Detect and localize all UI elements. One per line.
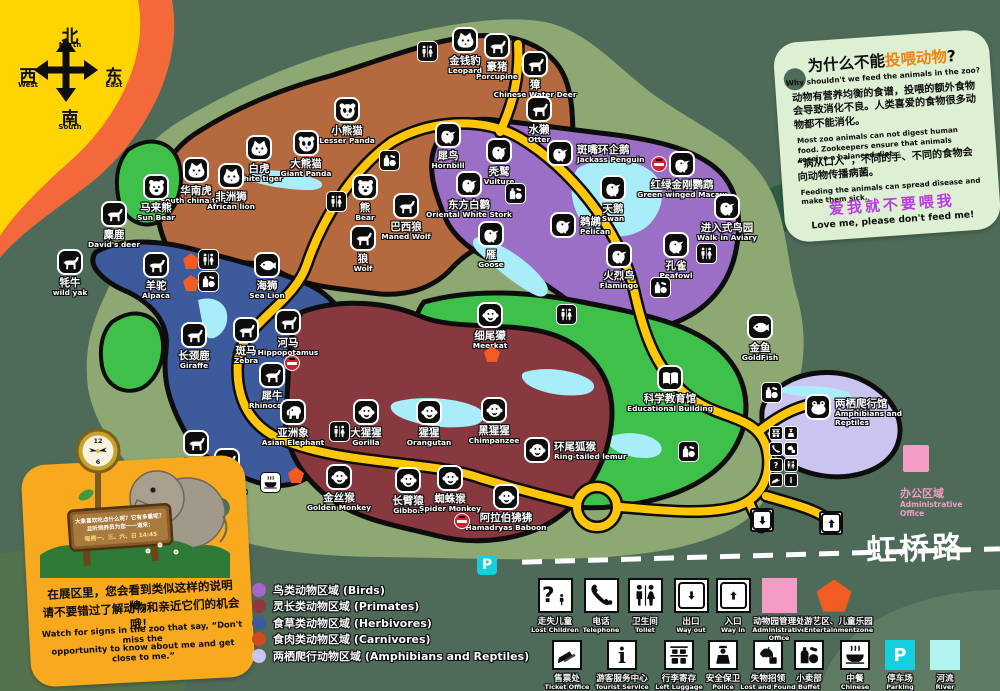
legend-river: 河流River [915,640,975,691]
mini-luggage-icon [769,426,783,440]
zone-legend-label: 食肉类动物区域 (Carnivores) [273,631,431,647]
parking-icon: P [477,555,497,575]
mini-lostchild-icon: ? [769,458,783,472]
zone-legend-item-3: 食肉类动物区域 (Carnivores) [252,631,431,647]
legend-label-en: Ticket Office [537,684,597,691]
legend-entertainmentzone-icon [817,578,852,613]
mini-police-icon [784,426,798,440]
legend-toilet-icon [628,578,663,613]
info-card: 为什么不能投喂动物? Why shouldn't we feed the ani… [772,29,1000,244]
legend-river-icon [930,640,960,670]
zone-color-dot [252,599,266,613]
no-entry-icon [454,513,470,529]
entertainment-pentagon-icon [484,346,500,362]
entertainment-pentagon-icon [183,253,199,269]
admin-area-chip [903,445,929,472]
kiosk-icon [678,441,699,462]
zone-legend-item-0: 鸟类动物区域 (Birds) [252,582,385,598]
legend-tourist-service-centre-icon: i [607,640,637,670]
toilet-icon [556,304,577,325]
wayin-icon [819,511,843,535]
legend-buffet-icon [794,640,824,670]
toilet-icon [696,243,717,264]
legend-label-en: River [915,684,975,691]
info-card-para1-zh: 动物有营养均衡的食谱，投喂的额外食物会导致消化不良。人类喜爱的食物很多动物都不能… [792,80,980,133]
mini-lostfound-icon [784,442,798,456]
legend-lost-children-icon: ? [538,578,573,613]
kiosk-icon [650,277,671,298]
kiosk-icon [379,150,400,171]
chinese-restaurant-icon [260,472,281,493]
clock-6: 6 [96,458,101,466]
legend-police-icon [708,640,738,670]
wayout-icon [750,508,774,532]
mini-toilet-icon [784,458,798,472]
legend-ticket-office: 售票处Ticket Office [537,640,597,691]
legend-label-en: Entertainmentzone [804,627,864,635]
zone-legend-label: 两栖爬行动物区域 (Amphibians and Reptiles) [273,648,529,664]
zoo-map: 北 North 西 West 东 East 南 South 金钱豹Leopard… [0,0,1000,691]
kiosk-icon [505,183,526,204]
zone-legend-item-4: 两栖爬行动物区域 (Amphibians and Reptiles) [252,648,529,664]
clock-12: 12 [93,437,102,445]
admin-area-zh: 办公区域 [900,487,962,500]
legend-administrative-office: 动物园管理处Administrative Office [749,578,809,642]
zone-legend-label: 食草类动物区域 (Herbivores) [273,615,432,631]
mini-ticket-icon [769,473,783,487]
legend-entertainmentzone: 游艺区、儿童乐园Entertainmentzone [804,578,864,635]
legend-ticket-office-icon [552,640,582,670]
mini-phone-icon [769,442,783,456]
entertainment-pentagon-icon [288,467,304,483]
legend-chinese-restaurant-icon [840,640,870,670]
zone-legend-item-1: 灵长类动物区域 (Primates) [252,598,419,614]
kiosk-icon [198,271,219,292]
legend-label-en: Tourist Service Centre [592,684,652,691]
no-entry-icon [284,355,300,371]
legend-left-luggage-icon [664,640,694,670]
road-name: 虹桥路 [865,522,965,569]
entertainment-pentagon-icon [183,275,199,291]
zone-color-dot [252,616,266,630]
toilet-icon [326,191,347,212]
admin-area-en: Administrative Office [900,500,962,518]
elephant-illustration: 12 6 大象喜欢吃点什么呢？它有多重呢？ 且听饲养员为您一一道来： 每周一、三… [40,423,230,578]
mini-info-icon: i [784,473,798,487]
zone-color-dot [252,649,266,663]
legend-telephone-icon [584,578,619,613]
legend-way-in-icon [716,578,751,613]
leaf-icon [77,487,95,502]
toilet-icon [329,421,350,442]
no-entry-icon [651,156,667,172]
toilet-icon [417,41,438,62]
zone-color-dot [252,632,266,646]
zone-legend-label: 鸟类动物区域 (Birds) [273,582,385,598]
zone-color-dot [252,583,266,597]
legend-administrative-office-icon [762,578,797,613]
legend-parking-icon: P [885,640,915,670]
kiosk-icon [761,382,782,403]
zone-legend-label: 灵长类动物区域 (Primates) [273,598,419,614]
zone-legend: 鸟类动物区域 (Birds)灵长类动物区域 (Primates)食草类动物区域 … [252,582,512,667]
zone-legend-item-2: 食草类动物区域 (Herbivores) [252,615,432,631]
toilet-icon [198,249,219,270]
legend-tourist-service-centre: i游客服务中心Tourist Service Centre [592,640,652,691]
